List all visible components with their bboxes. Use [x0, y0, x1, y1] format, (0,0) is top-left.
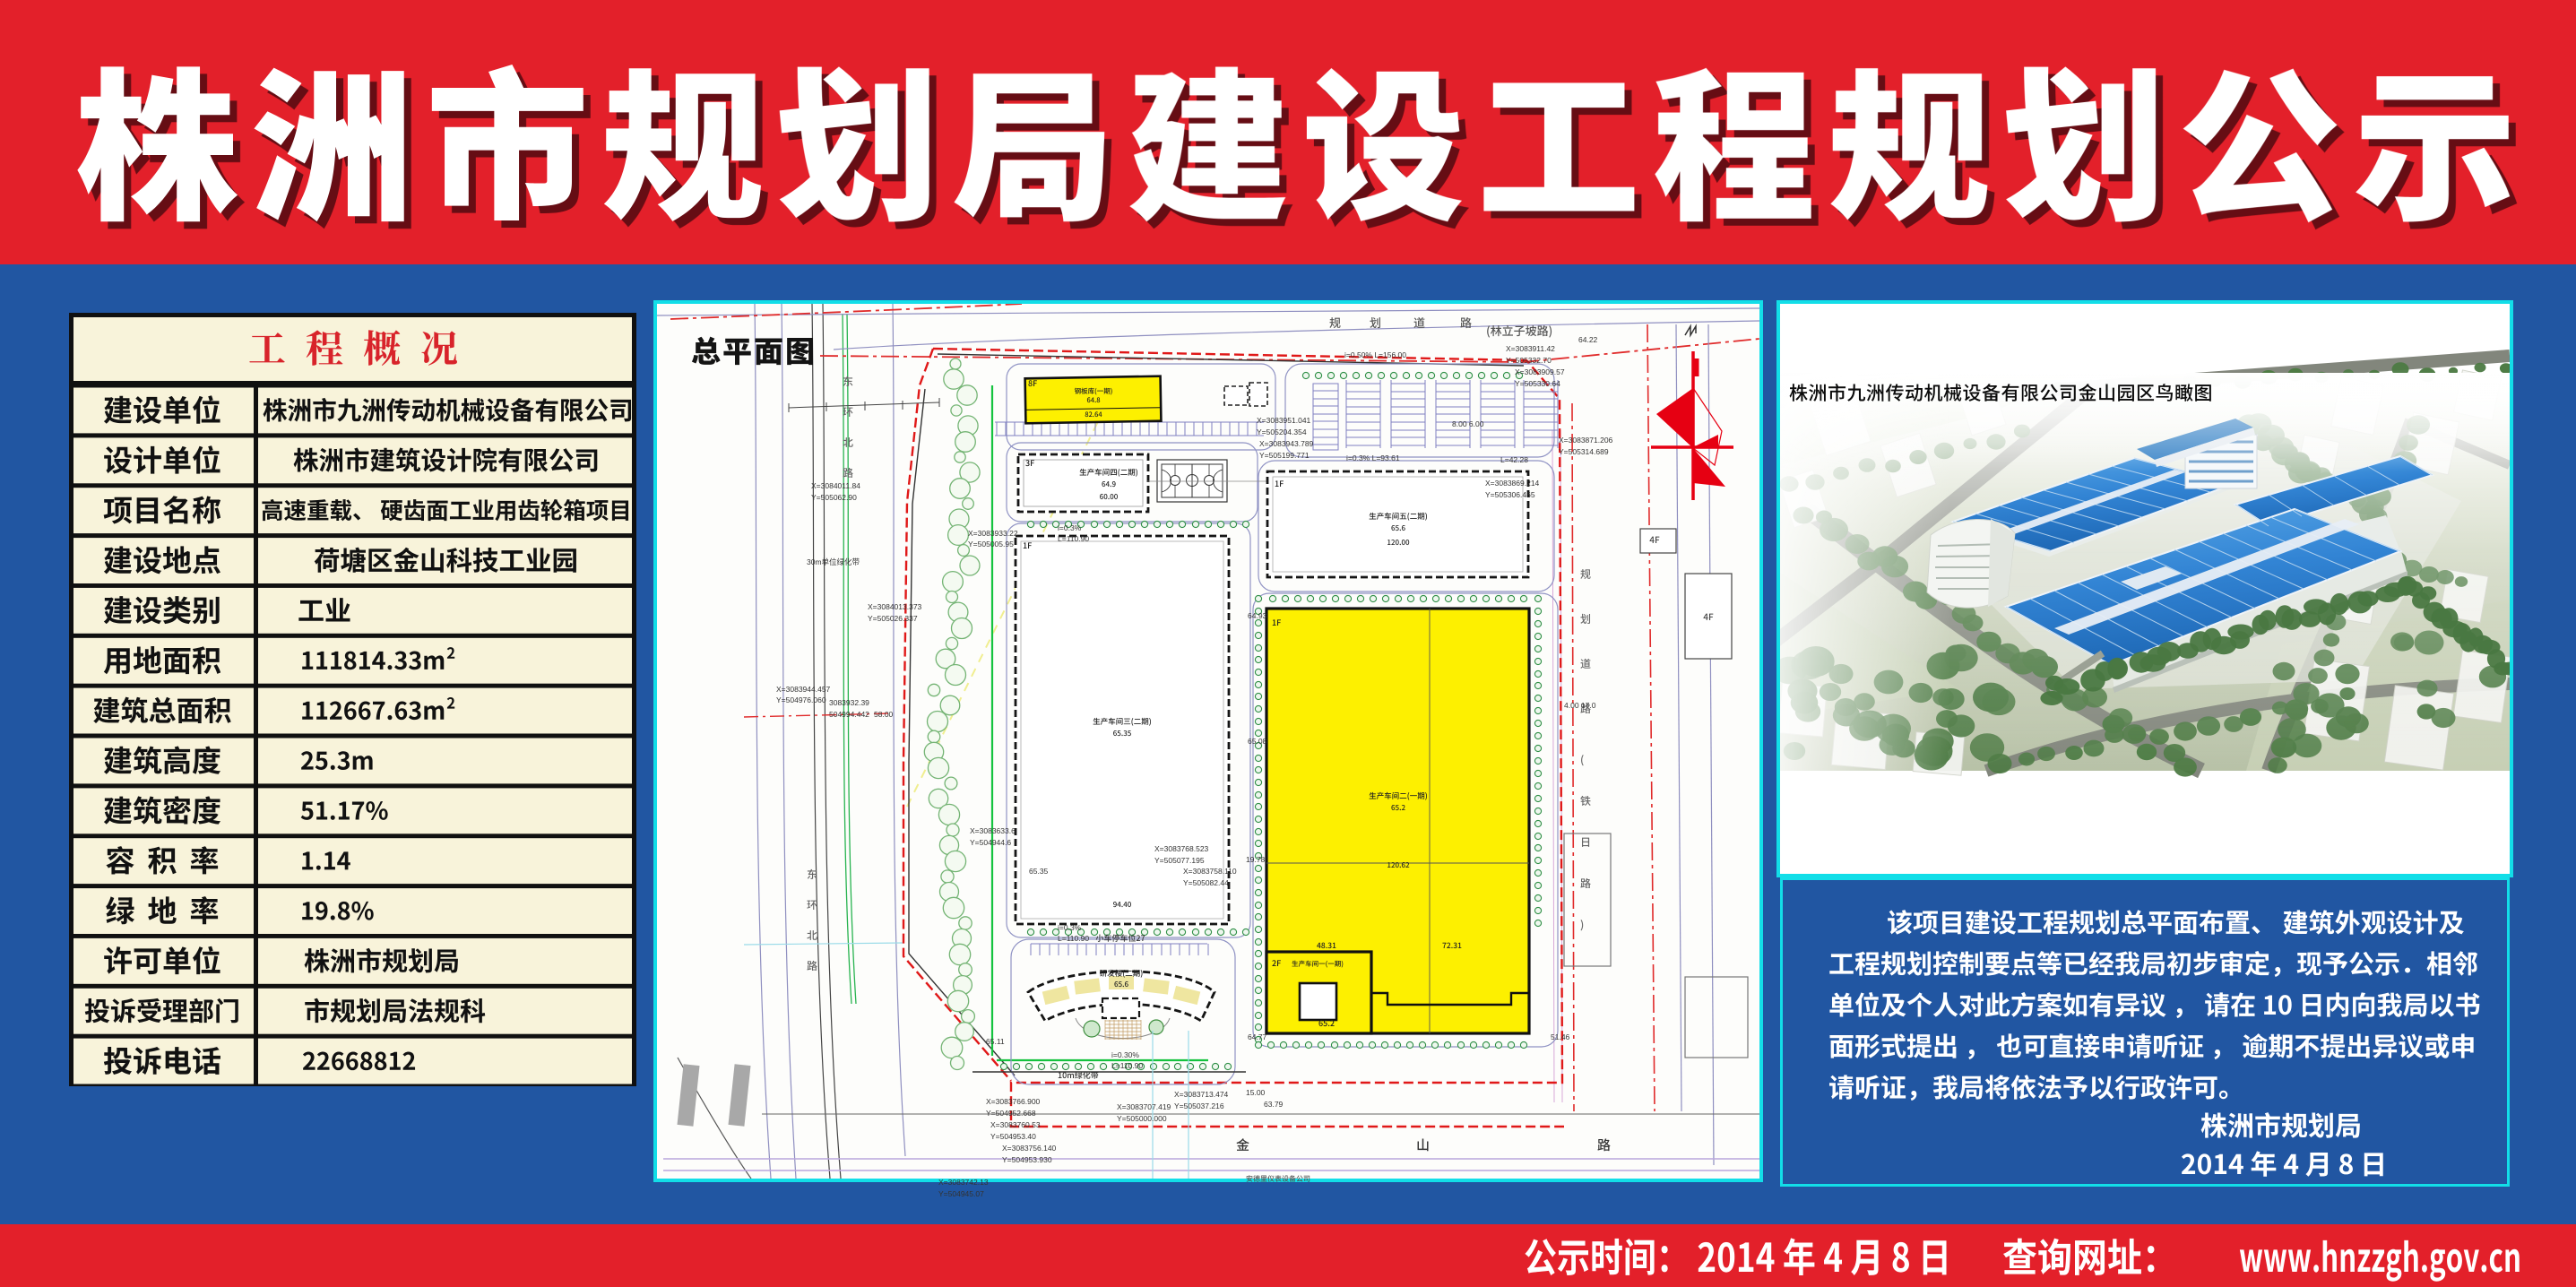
svg-text:8.00 6.00: 8.00 6.00 — [1452, 419, 1484, 428]
svg-text:X=3083944.457: X=3083944.457 — [776, 685, 831, 694]
svg-text:Y=505330.64: Y=505330.64 — [1515, 379, 1560, 388]
svg-text:X=3083943.789: X=3083943.789 — [1259, 439, 1314, 448]
svg-text:X=3083760.53: X=3083760.53 — [990, 1120, 1041, 1129]
svg-text:X=3083909.57: X=3083909.57 — [1515, 367, 1565, 376]
svg-text:i=0.50% L=156.00: i=0.50% L=156.00 — [1344, 350, 1406, 359]
svg-text:Y=505332.70: Y=505332.70 — [1506, 356, 1552, 365]
svg-text:X=3083756.140: X=3083756.140 — [1002, 1144, 1057, 1153]
svg-text:X=3083766.900: X=3083766.900 — [986, 1097, 1041, 1106]
svg-text:Y=504953.40: Y=504953.40 — [990, 1132, 1036, 1141]
svg-text:L=110.90: L=110.90 — [1111, 1061, 1143, 1070]
svg-text:Y=505005.95: Y=505005.95 — [968, 540, 1014, 548]
svg-text:L=110.90: L=110.90 — [1058, 534, 1089, 543]
svg-text:64.77: 64.77 — [1248, 1032, 1267, 1041]
svg-text:X=3084013.373: X=3084013.373 — [868, 602, 922, 611]
svg-text:64.93: 64.93 — [1248, 611, 1267, 620]
svg-text:X=3083707.419: X=3083707.419 — [1117, 1102, 1171, 1111]
svg-text:X=3083633.6: X=3083633.6 — [970, 826, 1016, 835]
svg-text:X=3083713.474: X=3083713.474 — [1174, 1090, 1229, 1099]
svg-text:X=3083768.523: X=3083768.523 — [1154, 844, 1209, 853]
svg-text:Y=505314.689: Y=505314.689 — [1559, 447, 1609, 456]
svg-text:64.22: 64.22 — [1578, 335, 1598, 344]
svg-text:4.00 17.0: 4.00 17.0 — [1564, 701, 1596, 710]
svg-text:15.00: 15.00 — [1246, 1088, 1266, 1097]
svg-text:Y=505082.44: Y=505082.44 — [1183, 878, 1229, 887]
svg-text:Y=505077.195: Y=505077.195 — [1154, 856, 1205, 865]
svg-text:30m单位绿化带: 30m单位绿化带 — [807, 557, 860, 566]
svg-text:65.11: 65.11 — [986, 1037, 1005, 1046]
svg-text:19.78: 19.78 — [1246, 855, 1266, 864]
svg-text:504994.442: 504994.442 — [829, 710, 869, 719]
svg-text:63.79: 63.79 — [1264, 1100, 1284, 1109]
svg-text:51.46: 51.46 — [1551, 1032, 1570, 1041]
svg-text:Y=505026.337: Y=505026.337 — [868, 614, 918, 623]
svg-text:58.00: 58.00 — [874, 710, 894, 719]
svg-text:Y=505000.000: Y=505000.000 — [1117, 1114, 1167, 1123]
svg-text:X=3083742.13: X=3083742.13 — [938, 1178, 989, 1187]
svg-text:L=42.28: L=42.28 — [1500, 455, 1528, 464]
svg-text:L=110.90: L=110.90 — [1058, 934, 1089, 943]
svg-text:i=0.30%: i=0.30% — [1111, 1050, 1139, 1059]
svg-text:X=3083933.22: X=3083933.22 — [968, 529, 1018, 538]
svg-text:Y=504952.668: Y=504952.668 — [986, 1109, 1036, 1118]
svg-text:65.08: 65.08 — [1248, 737, 1267, 746]
svg-text:Y=504945.07: Y=504945.07 — [938, 1189, 984, 1198]
svg-text:Y=504944.6: Y=504944.6 — [970, 838, 1011, 847]
svg-text:i=0.3%: i=0.3% — [1058, 523, 1082, 532]
svg-text:Y=505037.216: Y=505037.216 — [1174, 1101, 1224, 1110]
svg-text:X=3083951.041: X=3083951.041 — [1257, 416, 1311, 425]
svg-text:Y=505306.465: Y=505306.465 — [1485, 490, 1535, 499]
svg-text:i=0.3%: i=0.3% — [1058, 923, 1082, 932]
svg-text:65.35: 65.35 — [1029, 867, 1049, 876]
svg-text:X=3083911.42: X=3083911.42 — [1506, 344, 1555, 353]
svg-text:X=3083758.110: X=3083758.110 — [1183, 867, 1237, 876]
svg-text:3083932.39: 3083932.39 — [829, 698, 869, 707]
svg-text:Y=505199.771: Y=505199.771 — [1259, 451, 1310, 460]
svg-text:Y=504976.060: Y=504976.060 — [776, 695, 826, 704]
svg-text:Y=505062.90: Y=505062.90 — [811, 493, 857, 502]
svg-text:X=3084011.84: X=3084011.84 — [811, 481, 860, 490]
svg-text:X=3083869.214: X=3083869.214 — [1485, 479, 1540, 488]
svg-text:X=3083871.206: X=3083871.206 — [1559, 436, 1613, 445]
svg-text:Y=505204.354: Y=505204.354 — [1257, 428, 1307, 436]
svg-text:i=0.3% L=93.61: i=0.3% L=93.61 — [1346, 453, 1400, 462]
svg-text:Y=504953.930: Y=504953.930 — [1002, 1155, 1052, 1164]
